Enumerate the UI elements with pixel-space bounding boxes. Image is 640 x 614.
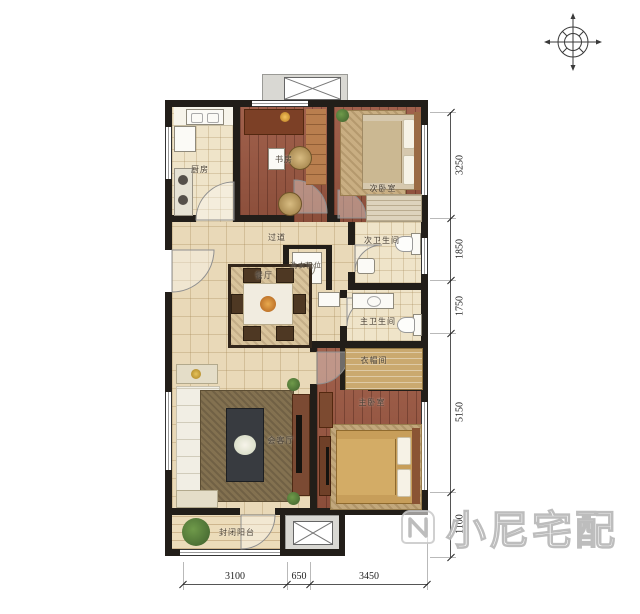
- extension-line: [430, 280, 456, 281]
- wall-bath1-left-a: [348, 222, 355, 245]
- bedroom2-headboard: [414, 112, 421, 190]
- wall-bath1-left-b: [348, 272, 355, 283]
- secondary-bedroom-label: 次卧室: [370, 185, 397, 193]
- pillow: [397, 437, 411, 465]
- dim-right-5150: 5150: [455, 402, 466, 422]
- desk-lamp: [280, 112, 290, 122]
- wall-living-balcony-b: [275, 508, 310, 515]
- stove: [174, 168, 193, 216]
- window-bedroom2-right: [421, 125, 428, 195]
- centerpiece: [260, 296, 276, 312]
- elevator-icon-top: [284, 77, 341, 100]
- hallway-label: 过道: [268, 234, 286, 242]
- plant-icon: [287, 492, 300, 505]
- bath1-sink: [357, 258, 375, 274]
- master-bathroom-label: 主卫生间: [360, 318, 396, 326]
- tv-cabinet: [292, 394, 310, 496]
- console-table: [176, 364, 218, 384]
- watermark: 小尼宅配: [396, 498, 618, 556]
- blanket: [337, 439, 396, 495]
- master-dresser: [319, 392, 333, 428]
- bath2-vanity: [352, 293, 394, 309]
- bedroom2-bed: [362, 114, 416, 190]
- toilet-bowl: [397, 317, 415, 333]
- extension-line: [310, 562, 311, 590]
- vestibule-basin: [318, 292, 340, 307]
- dim-right-1750: 1750: [455, 296, 466, 316]
- balcony-label: 封闭阳台: [219, 529, 255, 537]
- wall-under-bedroom-a: [334, 215, 340, 222]
- study-cabinet: [306, 109, 326, 185]
- elevator-x-glyph: [294, 522, 332, 544]
- wall-laundry-right: [326, 245, 332, 290]
- dining-chair: [276, 268, 294, 283]
- window-master-right: [421, 402, 428, 490]
- extension-line: [430, 218, 456, 219]
- study-desk: [244, 109, 304, 135]
- dining-label: 餐厅: [255, 272, 273, 280]
- wall-bath2-left-a: [340, 290, 347, 298]
- wall-study-right: [327, 107, 334, 222]
- extension-line: [430, 492, 456, 493]
- wall-under-kitchen: [172, 215, 196, 222]
- burner: [178, 175, 188, 185]
- dining-chair: [243, 326, 261, 341]
- wall-living-balcony-a: [172, 508, 240, 515]
- flower-vase: [234, 435, 256, 455]
- dining-chair: [276, 326, 294, 341]
- plant-icon: [287, 378, 300, 391]
- pillow: [397, 469, 411, 497]
- kitchen-sink: [186, 109, 224, 125]
- dimension-line-bottom: [183, 584, 428, 585]
- wall-master-top: [310, 341, 428, 348]
- master-bed: [336, 430, 414, 504]
- study-chair: [278, 192, 302, 216]
- coffee-table: [226, 408, 264, 482]
- wall-master-left-a: [310, 348, 317, 352]
- extension-line: [430, 112, 456, 113]
- study-label: 书房: [275, 156, 293, 164]
- wall-bath1-bottom: [348, 283, 428, 290]
- compass-icon: [544, 13, 602, 71]
- elevator-icon-bottom: [293, 521, 333, 545]
- living-room-label: 会客厅: [268, 437, 295, 445]
- dim-bottom-650: 650: [292, 571, 307, 582]
- dining-chair: [293, 294, 306, 314]
- wall-shaft-bottom-right: [339, 515, 345, 549]
- fridge: [174, 126, 196, 152]
- wall-under-study: [240, 215, 294, 222]
- extension-line: [430, 557, 456, 558]
- window-balcony-bottom: [180, 549, 280, 556]
- console-table: [176, 490, 218, 508]
- window-bath1-right: [421, 238, 428, 274]
- master-tv-stand: [319, 436, 331, 496]
- window-living-left: [165, 392, 172, 470]
- vanity-basin: [367, 296, 381, 307]
- master-headboard: [412, 428, 420, 504]
- tv-icon: [296, 415, 302, 473]
- floor-plan-canvas: 厨房 书房 次卧室 次卫生间 过道 洗衣机位 餐厅 主卫生间 衣帽间 主卧室 会…: [0, 0, 640, 614]
- dim-bottom-3100: 3100: [225, 571, 245, 582]
- dim-right-3250: 3250: [455, 155, 466, 175]
- plant-icon: [336, 109, 349, 122]
- blanket: [363, 121, 402, 183]
- cloakroom-label: 衣帽间: [361, 357, 388, 365]
- master-bedroom-label: 主卧室: [359, 399, 386, 407]
- extension-line: [430, 333, 456, 334]
- wall-master-left-b: [310, 384, 317, 508]
- tv-icon: [326, 447, 329, 485]
- wall-laundry-top: [283, 245, 332, 249]
- kitchen-label: 厨房: [191, 166, 209, 174]
- elevator-x-glyph: [285, 78, 340, 99]
- brand-logo-icon: [396, 505, 440, 549]
- burner: [178, 195, 188, 205]
- sink-basin: [207, 113, 219, 123]
- laundry-label: 洗衣机位: [290, 263, 322, 270]
- secondary-bathroom-label: 次卫生间: [364, 237, 400, 245]
- wall-bath2-left-b: [340, 326, 347, 341]
- window-study-top: [252, 100, 308, 107]
- extension-line: [183, 562, 184, 590]
- cloakroom-shelving: [345, 348, 423, 390]
- balcony-plant-icon: [182, 518, 210, 546]
- sink-basin: [191, 113, 203, 123]
- watermark-text: 小尼宅配: [446, 498, 618, 556]
- window-kitchen-left: [165, 127, 172, 179]
- dim-bottom-3450: 3450: [359, 571, 379, 582]
- extension-line: [287, 562, 288, 590]
- dining-table: [243, 283, 293, 325]
- bedroom2-bench: [366, 194, 422, 222]
- gold-bowl: [191, 369, 201, 379]
- wall-kitchen-right: [233, 107, 240, 222]
- wall-shaft-bottom-left: [280, 515, 285, 549]
- dim-right-1850: 1850: [455, 239, 466, 259]
